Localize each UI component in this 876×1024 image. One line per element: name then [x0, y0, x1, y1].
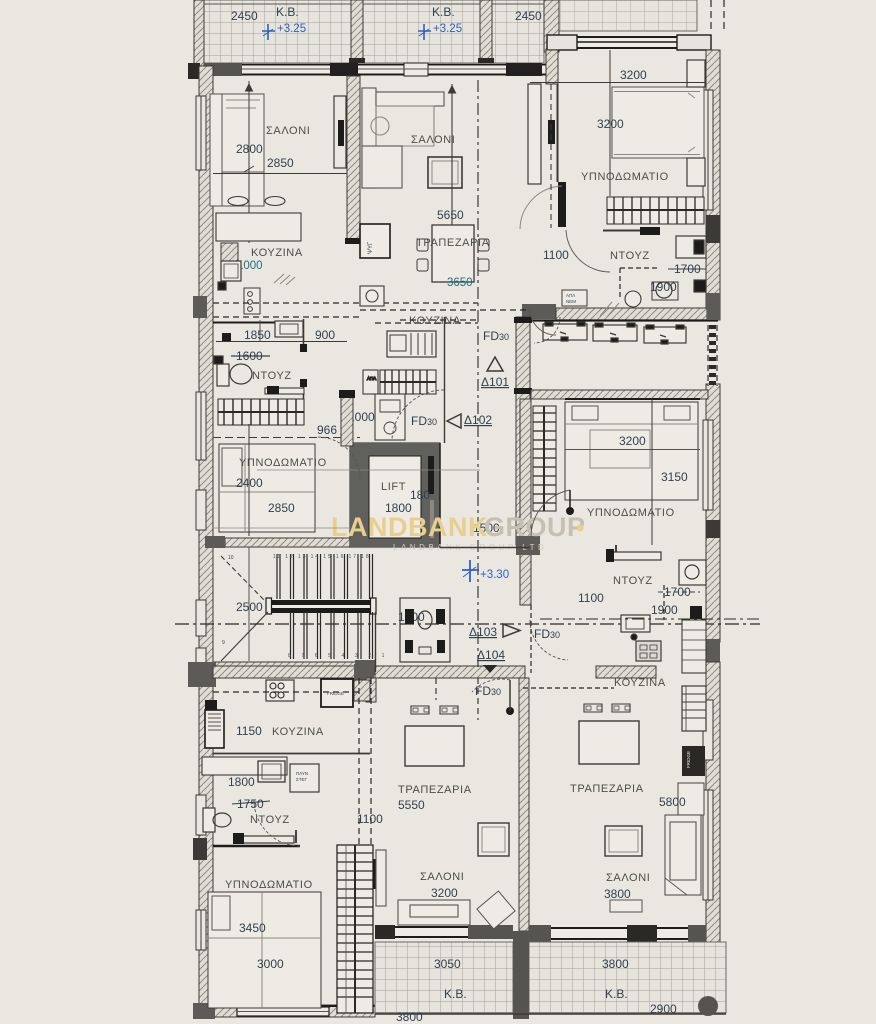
svg-text:3200: 3200 — [597, 117, 624, 131]
svg-text:GROUP: GROUP — [484, 512, 586, 542]
svg-text:Δ102: Δ102 — [464, 413, 492, 427]
svg-text:ΚΟΥΖΙΝΑ: ΚΟΥΖΙΝΑ — [614, 677, 666, 689]
svg-text:K.B.: K.B. — [605, 987, 628, 1001]
svg-text:2500: 2500 — [236, 600, 263, 614]
svg-text:ΠΛΥΝ: ΠΛΥΝ — [296, 771, 308, 776]
svg-text:ΝΤΟΥΖ: ΝΤΟΥΖ — [613, 575, 653, 587]
svg-text:2850: 2850 — [267, 156, 294, 170]
svg-text:3800: 3800 — [602, 957, 629, 971]
svg-text:ΥΠΝΟΔΩΜΑΤΙΟ: ΥΠΝΟΔΩΜΑΤΙΟ — [239, 457, 327, 469]
svg-text:K.B.: K.B. — [444, 987, 467, 1001]
svg-text:2400: 2400 — [236, 476, 263, 490]
svg-text:10: 10 — [228, 555, 234, 561]
svg-text:1150: 1150 — [236, 724, 262, 738]
svg-text:FD30: FD30 — [411, 414, 437, 428]
svg-text:ΣΑΛΟΝΙ: ΣΑΛΟΝΙ — [411, 134, 455, 146]
svg-text:1850: 1850 — [244, 328, 271, 342]
svg-text:ΥΠΝΟΔΩΜΑΤΙΟ: ΥΠΝΟΔΩΜΑΤΙΟ — [225, 879, 313, 891]
svg-text:ΨΥΓ: ΨΥΓ — [368, 241, 374, 254]
svg-text:K.B.: K.B. — [276, 5, 299, 19]
svg-text:Δ101: Δ101 — [481, 375, 509, 389]
svg-text:ΝΕΜ: ΝΕΜ — [566, 299, 576, 304]
svg-text:5800: 5800 — [659, 795, 686, 809]
svg-text:FD30: FD30 — [483, 329, 509, 343]
svg-text:ΣΤΕΓ: ΣΤΕΓ — [296, 777, 308, 782]
svg-text:2450: 2450 — [515, 9, 542, 23]
svg-text:ΣΑΛΟΝΙ: ΣΑΛΟΝΙ — [606, 872, 650, 884]
svg-text:9: 9 — [222, 640, 225, 646]
svg-text:3200: 3200 — [620, 68, 647, 82]
svg-text:ΤΡΑΠΕΖΑΡΙΑ: ΤΡΑΠΕΖΑΡΙΑ — [416, 237, 490, 249]
svg-text:ΝΤΟΥΖ: ΝΤΟΥΖ — [252, 370, 292, 382]
svg-text:ΝΤΟΥΖ: ΝΤΟΥΖ — [610, 250, 650, 262]
svg-text:ΥΠΝΟΔΩΜΑΤΙΟ: ΥΠΝΟΔΩΜΑΤΙΟ — [581, 171, 669, 183]
svg-text:ΚΟΥΖΙΝΑ: ΚΟΥΖΙΝΑ — [251, 247, 303, 259]
svg-text:11 12 13 14 15 16 17 18: 11 12 13 14 15 16 17 18 — [273, 554, 371, 560]
svg-text:1100: 1100 — [357, 812, 383, 826]
svg-text:ΚΟΥΖΙΝΑ: ΚΟΥΖΙΝΑ — [409, 315, 461, 327]
svg-text:Δ104: Δ104 — [477, 648, 505, 662]
svg-text:2900: 2900 — [650, 1002, 677, 1016]
svg-text:ΥΠΝΟΔΩΜΑΤΙΟ: ΥΠΝΟΔΩΜΑΤΙΟ — [587, 507, 675, 519]
svg-text:ΤΡΑΠΕΖΑΡΙΑ: ΤΡΑΠΕΖΑΡΙΑ — [570, 783, 644, 795]
svg-text:LIFT: LIFT — [381, 481, 406, 493]
svg-text:ΑΠΛ: ΑΠΛ — [566, 293, 575, 298]
svg-text:1100: 1100 — [543, 248, 569, 262]
svg-text:ΤΡΑΠΕΖΑΡΙΑ: ΤΡΑΠΕΖΑΡΙΑ — [398, 784, 472, 796]
svg-text:966: 966 — [317, 423, 337, 437]
svg-text:ΝΤΟΥΖ: ΝΤΟΥΖ — [250, 814, 290, 826]
svg-text:LANDBANK: LANDBANK — [331, 512, 488, 542]
svg-text:5650: 5650 — [437, 208, 464, 222]
svg-text:3200: 3200 — [431, 886, 458, 900]
svg-text:FD30: FD30 — [534, 627, 560, 641]
svg-text:+3.30: +3.30 — [480, 569, 509, 581]
svg-text:2850: 2850 — [268, 501, 295, 515]
svg-text:3200: 3200 — [619, 434, 646, 448]
svg-text:+3.25: +3.25 — [433, 23, 462, 35]
svg-text:3650: 3650 — [447, 277, 473, 289]
svg-text:FRIDGE: FRIDGE — [686, 751, 691, 768]
svg-text:3800: 3800 — [396, 1010, 423, 1024]
svg-text:Δ103: Δ103 — [469, 625, 497, 639]
svg-text:K.B.: K.B. — [432, 5, 455, 19]
svg-text:2800: 2800 — [236, 142, 263, 156]
svg-text:8 7 6 5 4 3 2 1: 8 7 6 5 4 3 2 1 — [288, 653, 389, 659]
svg-text:ΣΑΛΟΝΙ: ΣΑΛΟΝΙ — [420, 871, 464, 883]
svg-text:ΣΑΛΟΝΙ: ΣΑΛΟΝΙ — [266, 125, 310, 137]
svg-text:900: 900 — [315, 328, 335, 342]
svg-text:3000: 3000 — [257, 957, 284, 971]
svg-text:5550: 5550 — [398, 798, 425, 812]
svg-text:3050: 3050 — [434, 957, 461, 971]
svg-text:3800: 3800 — [604, 887, 631, 901]
svg-text:3150: 3150 — [661, 470, 688, 484]
svg-text:2450: 2450 — [231, 9, 258, 23]
svg-text:1750: 1750 — [237, 797, 264, 811]
svg-text:180: 180 — [410, 488, 430, 502]
svg-text:1800: 1800 — [228, 775, 255, 789]
svg-text:3450: 3450 — [239, 921, 266, 935]
svg-text:1100: 1100 — [578, 591, 604, 605]
svg-text:ΚΟΥΖΙΝΑ: ΚΟΥΖΙΝΑ — [272, 726, 324, 738]
svg-text:ΑΠΛ: ΑΠΛ — [367, 376, 376, 381]
svg-text:+3.25: +3.25 — [277, 23, 306, 35]
